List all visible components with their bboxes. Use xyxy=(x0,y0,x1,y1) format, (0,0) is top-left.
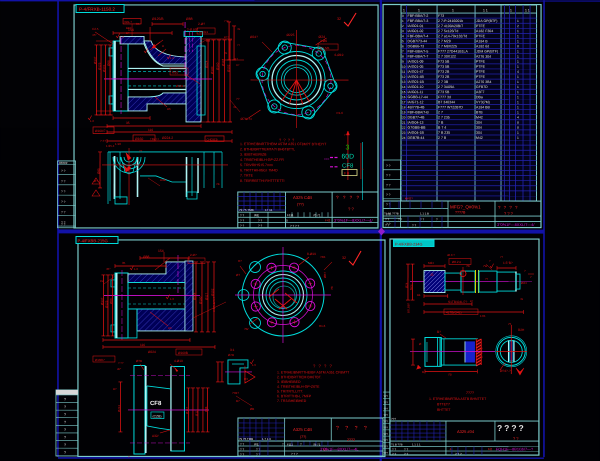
svg-text:1: 1 xyxy=(517,100,519,104)
svg-text:116: 116 xyxy=(148,128,153,132)
svg-text:???7B: ???7B xyxy=(455,211,466,215)
svg-text:?: ? xyxy=(64,413,66,417)
svg-text:Ø125: Ø125 xyxy=(104,300,108,308)
svg-text:?B: ?B xyxy=(330,286,334,290)
svg-text:Ø88: Ø88 xyxy=(186,17,193,21)
svg-text:FQH1F—8B1Gb/7—?: FQH1F—8B1Gb/7—? xyxy=(496,448,533,452)
svg-text:10: 10 xyxy=(402,65,406,69)
svg-text:8: 8 xyxy=(517,121,519,125)
svg-text:A276 3B4: A276 3B4 xyxy=(476,80,491,84)
svg-text:DGB77-4B: DGB77-4B xyxy=(408,116,426,120)
svg-text:?B: ?B xyxy=(237,27,240,31)
svg-text:4B/77B-4B: 4B/77B-4B xyxy=(408,105,426,109)
svg-text:417B(O4L): 417B(O4L) xyxy=(446,311,462,315)
svg-text:Ø160/7: Ø160/7 xyxy=(95,129,106,133)
svg-text:R1.6: R1.6 xyxy=(319,324,326,328)
svg-text:7?: 7? xyxy=(500,255,504,259)
svg-text:B 7 4: B 7 4 xyxy=(438,126,446,130)
svg-text:???: ??? xyxy=(391,417,396,421)
svg-text:? ? ?: ? ? ? xyxy=(455,452,462,456)
svg-text:BTTET7: BTTET7 xyxy=(437,402,450,406)
svg-text:PTFE: PTFE xyxy=(476,60,486,64)
svg-text:M42: M42 xyxy=(476,116,483,120)
svg-text:2: 2 xyxy=(402,24,404,28)
svg-text:4: 4 xyxy=(517,116,519,120)
svg-text:A182 6d: A182 6d xyxy=(476,44,489,48)
svg-text:1.6: 1.6 xyxy=(120,35,124,39)
svg-text:7. TRTE: 7. TRTE xyxy=(240,174,254,178)
svg-text:DBa: DBa xyxy=(476,95,483,99)
svg-text:? ?: ? ? xyxy=(61,190,66,194)
svg-text:? ?: ? ? xyxy=(240,219,245,223)
svg-text:PTFE: PTFE xyxy=(476,34,486,38)
svg-text:Ø190: Ø190 xyxy=(198,296,202,304)
svg-text:1:10: 1:10 xyxy=(115,142,121,146)
svg-text:G7GBB-BB: G7GBB-BB xyxy=(408,126,427,130)
svg-text:.1: .1 xyxy=(449,447,452,451)
svg-text:B??: B?? xyxy=(224,35,229,39)
svg-text:?: ? xyxy=(64,428,66,432)
svg-text:Ø160B: Ø160B xyxy=(178,351,188,355)
svg-text:12: 12 xyxy=(402,75,406,79)
svg-text:B7 340344: B7 340344 xyxy=(438,100,455,104)
svg-text:A32/: A32/ xyxy=(160,178,166,182)
svg-text:1.6: 1.6 xyxy=(170,297,174,301)
svg-text:13: 13 xyxy=(402,80,406,84)
svg-text:15: 15 xyxy=(402,90,406,94)
svg-text:3"0%1F—8XXL/7—4L: 3"0%1F—8XXL/7—4L xyxy=(320,447,359,452)
svg-text:Ø190: Ø190 xyxy=(210,66,214,74)
svg-text:6: 6 xyxy=(402,44,404,48)
svg-text:75: 75 xyxy=(508,322,512,326)
svg-text:1: 1 xyxy=(403,8,405,12)
svg-text:11: 11 xyxy=(402,70,405,74)
svg-text:1.6: 1.6 xyxy=(252,363,256,367)
svg-text:7 B 235: 7 B 235 xyxy=(438,131,450,135)
svg-text:1: 1 xyxy=(517,110,519,114)
svg-text:5. TRITRTLL/T?:: 5. TRITRTLL/T?: xyxy=(277,389,303,393)
svg-text:2 7 30X122: 2 7 30X122 xyxy=(438,55,456,59)
svg-text:1.5°B?: 1.5°B? xyxy=(503,261,513,265)
svg-text:Ø95: Ø95 xyxy=(97,168,101,174)
svg-text:JDA GP(BTF): JDA GP(BTF) xyxy=(476,19,497,23)
svg-text:7W: 7W xyxy=(483,264,488,268)
svg-text:1: 1 xyxy=(517,80,519,84)
svg-text:1 1: 1 1 xyxy=(483,8,488,12)
svg-text:5. TRIVRIHS:I5.7mm: 5. TRIVRIHS:I5.7mm xyxy=(240,163,273,167)
svg-text:? ?: ? ? xyxy=(240,442,245,446)
svg-text:PTFE: PTFE xyxy=(476,70,486,74)
svg-text:TBZ××: TBZ×× xyxy=(150,137,159,141)
svg-text:A182 F304: A182 F304 xyxy=(476,29,493,33)
svg-text:Ø224.2: Ø224.2 xyxy=(162,136,173,140)
svg-text:? ? ? ?: ? ? ? ? xyxy=(290,224,300,228)
svg-text:M10x1: M10x1 xyxy=(199,30,208,34)
svg-text:1: 1 xyxy=(517,55,519,59)
svg-text:A325 C4B: A325 C4B xyxy=(293,195,312,200)
svg-text:17B: 17B xyxy=(480,314,485,318)
svg-text:? ? ? ?: ? ? ? ? xyxy=(336,195,361,200)
svg-text:FBF-BBA/7-7: FBF-BBA/7-7 xyxy=(408,55,429,59)
svg-text:R6: R6 xyxy=(168,326,172,330)
svg-text:1.1 1.B: 1.1 1.B xyxy=(420,212,429,216)
svg-text:FBF-BBA/7-B: FBF-BBA/7-B xyxy=(408,110,430,114)
svg-text:1: 1 xyxy=(517,105,519,109)
svg-text:45°: 45° xyxy=(106,267,111,271)
svg-text:???: ??? xyxy=(383,394,388,398)
svg-text:304: 304 xyxy=(476,121,482,125)
svg-text:2 7: 2 7 xyxy=(438,110,443,114)
svg-text:IA/G71-12: IA/G71-12 xyxy=(408,100,424,104)
svg-text:Ø24: Ø24 xyxy=(521,281,527,285)
svg-text:45°: 45° xyxy=(92,33,97,37)
svg-text:2 7 M8X225: 2 7 M8X225 xyxy=(438,44,457,48)
svg-text:? ?: ? ? xyxy=(385,223,390,227)
svg-text:Ø160/7: Ø160/7 xyxy=(95,358,105,362)
svg-text:Ø160: Ø160 xyxy=(216,62,220,70)
svg-text:F777 27D441B1LA: F777 27D441B1LA xyxy=(438,49,468,53)
svg-text:A276 304: A276 304 xyxy=(476,55,491,59)
svg-text:? ?: ? ? xyxy=(348,207,354,212)
svg-text:IA/G01-4B: IA/G01-4B xyxy=(408,75,425,79)
svg-text:? ?: ? ? xyxy=(61,200,66,204)
svg-text:Ø?4B?B: Ø?4B?B xyxy=(479,347,483,358)
svg-text:Ø137: Ø137 xyxy=(185,407,189,414)
svg-text:IA/G01-01: IA/G01-01 xyxy=(408,24,424,28)
svg-text:35: 35 xyxy=(122,261,126,265)
svg-text:79 75 TMB: 79 75 TMB xyxy=(239,437,253,441)
svg-text:? ?: ? ? xyxy=(386,174,391,178)
svg-text:MFG?: MFG? xyxy=(405,197,413,201)
svg-text:Ø24: Ø24 xyxy=(404,282,408,288)
svg-text:A184 B: A184 B xyxy=(476,39,488,43)
svg-text:1: 1 xyxy=(517,34,519,38)
svg-text:4. TRIBTHEIBLH-GP-Z6TE: 4. TRIBTHEIBLH-GP-Z6TE xyxy=(277,385,320,389)
svg-text:F73 5B: F73 5B xyxy=(438,90,450,94)
svg-text:B?: B? xyxy=(236,399,240,403)
svg-text:???: ??? xyxy=(383,407,388,411)
svg-text:? ?: ? ? xyxy=(240,213,245,217)
svg-text:8. TEIRRBTTHI RHTTTETTI: 8. TEIRRBTTHI RHTTTETTI xyxy=(240,179,284,183)
svg-text:C2: C2 xyxy=(100,279,104,283)
svg-text:GFB7D: GFB7D xyxy=(476,85,488,89)
svg-text:PTFE: PTFE xyxy=(476,65,486,69)
svg-text:Ø?: Ø? xyxy=(236,273,240,277)
svg-text:F B: F B xyxy=(344,172,350,176)
svg-text:F73 5B: F73 5B xyxy=(438,60,450,64)
svg-text:? ?: ? ? xyxy=(240,452,245,456)
svg-text:??: ?? xyxy=(236,97,240,101)
svg-text:? ?: ? ? xyxy=(258,224,263,228)
svg-text:? ?: ? ? xyxy=(513,436,519,441)
svg-text:3:1: 3:1 xyxy=(230,348,235,352)
svg-text:8-Ø19: 8-Ø19 xyxy=(307,252,316,256)
svg-text:M24: M24 xyxy=(428,261,434,265)
svg-text:79 75 TMB: 79 75 TMB xyxy=(239,208,254,212)
svg-text:3"0%1F—8XXL/7—4/: 3"0%1F—8XXL/7—4/ xyxy=(497,222,535,227)
svg-text:R6: R6 xyxy=(167,107,171,111)
svg-text:3: 3 xyxy=(402,29,404,33)
svg-text:Ø224: Ø224 xyxy=(148,350,156,354)
svg-text:Ø?4: Ø?4 xyxy=(246,117,252,121)
svg-text:? ?: ? ? xyxy=(61,210,66,214)
svg-text:Ø88: Ø88 xyxy=(107,60,111,66)
svg-text:1: 1 xyxy=(402,19,404,23)
svg-text:? ?: ? ? xyxy=(386,164,391,168)
svg-text:?7B?: ?7B? xyxy=(232,391,239,395)
svg-text:???: ??? xyxy=(383,451,388,455)
svg-text:????: ???? xyxy=(497,423,526,433)
svg-text:1B: 1B xyxy=(417,293,421,297)
svg-text:M42: M42 xyxy=(476,136,483,140)
svg-text:CF8: CF8 xyxy=(342,164,354,170)
svg-text:9: 9 xyxy=(402,60,404,64)
svg-text:?: ? xyxy=(64,443,66,447)
svg-text:17: 17 xyxy=(402,100,406,104)
svg-text:Ø?B: Ø?B xyxy=(136,359,142,363)
svg-text:R?: R? xyxy=(236,63,240,67)
svg-text:Ø160: Ø160 xyxy=(135,137,143,141)
svg-text:Ø117: Ø117 xyxy=(221,59,225,66)
svg-text:? ? ?: ? ? ? xyxy=(504,211,514,216)
svg-text:1.7 1.3: 1.7 1.3 xyxy=(262,437,271,441)
svg-text:? ?: ? ? xyxy=(404,447,409,451)
svg-text:A3F7: A3F7 xyxy=(476,90,484,94)
svg-text:IA/G01-47: IA/G01-47 xyxy=(408,70,424,74)
svg-text:B?: B? xyxy=(437,330,441,334)
svg-text:? ?: ? ? xyxy=(240,447,245,451)
svg-text:Ø137: Ø137 xyxy=(93,56,97,64)
svg-text:?: ? xyxy=(64,420,66,424)
svg-text:2-Ø?: 2-Ø? xyxy=(198,22,205,26)
svg-text:304: 304 xyxy=(476,131,482,135)
svg-text:(7?): (7?) xyxy=(300,435,306,439)
svg-text:7B: 7B xyxy=(448,373,452,377)
svg-text:J5: J5 xyxy=(430,273,434,277)
svg-text:WE: WE xyxy=(254,213,259,217)
svg-text:154: 154 xyxy=(158,249,164,253)
svg-text:PTFE: PTFE xyxy=(476,75,486,79)
svg-text:P-4/FXBB-234G: P-4/FXBB-234G xyxy=(395,243,422,247)
svg-text:S1TB/O4L/7?: S1TB/O4L/7? xyxy=(448,300,468,304)
svg-text:2 7 4100A20B/7: 2 7 4100A20B/7 xyxy=(438,24,463,28)
svg-text:???: ??? xyxy=(383,413,388,417)
svg-text:DGB7/73-44: DGB7/73-44 xyxy=(408,39,428,43)
svg-text:Ø0.2 A: Ø0.2 A xyxy=(452,260,461,264)
svg-text:Ø137: Ø137 xyxy=(100,297,104,305)
svg-text:45°: 45° xyxy=(117,367,121,371)
svg-text:???: ??? xyxy=(383,400,388,404)
svg-text:?: ? xyxy=(64,398,66,402)
svg-text:16: 16 xyxy=(402,95,406,99)
svg-text:Ø117: Ø117 xyxy=(204,293,208,300)
svg-text:1: 1 xyxy=(517,29,519,33)
svg-text:PTFE: PTFE xyxy=(476,24,486,28)
svg-text:ØB?: ØB? xyxy=(323,272,327,278)
svg-text:35: 35 xyxy=(136,22,140,26)
svg-text:8: 8 xyxy=(517,44,519,48)
svg-text:154: 154 xyxy=(128,28,134,32)
svg-text:Ø125: Ø125 xyxy=(98,62,102,70)
svg-text:?1.B1 ?7?B: ?1.B1 ?7?B xyxy=(384,212,399,216)
svg-text:1: 1 xyxy=(452,8,454,12)
svg-text:B7B: B7B xyxy=(476,110,483,114)
svg-text:?.??: ?.?? xyxy=(118,361,124,365)
svg-text:R1.6: R1.6 xyxy=(337,111,344,115)
svg-text:? ? ? ?: ? ? ? ? xyxy=(313,364,333,369)
svg-text:1. ETRHEIBNRTTHEIBF A5TM A351: 1. ETRHEIBNRTTHEIBF A5TM A351 CF8M?T xyxy=(277,370,350,374)
svg-text:Ø125/B: Ø125/B xyxy=(152,17,164,21)
svg-text:? ?: ? ? xyxy=(392,447,397,451)
svg-text:Ø224: Ø224 xyxy=(117,405,121,412)
svg-text:Ø117: Ø117 xyxy=(194,409,198,416)
svg-text:?: ? xyxy=(64,451,66,455)
svg-text:1: 1 xyxy=(517,90,519,94)
svg-text:M10: M10 xyxy=(172,70,178,74)
svg-text:R3: R3 xyxy=(244,377,248,381)
svg-text:Ø88: Ø88 xyxy=(109,298,113,304)
svg-text:#####: ##### xyxy=(59,161,68,165)
svg-text:7?B: 7?B xyxy=(224,19,229,23)
svg-text:? ?: ? ? xyxy=(385,217,390,221)
svg-text:? ?: ? ? xyxy=(386,183,391,187)
svg-text:1.6: 1.6 xyxy=(170,56,174,60)
svg-text:F73: F73 xyxy=(438,14,444,18)
svg-text:14: 14 xyxy=(402,85,406,89)
svg-text:2-Ø?: 2-Ø? xyxy=(190,253,197,257)
svg-text:22: 22 xyxy=(402,126,406,130)
svg-text:Ø101.6: Ø101.6 xyxy=(176,84,186,88)
svg-text:1. ETRHEIBNRTTHEIM A5TM A351: 1. ETRHEIBNRTTHEIM A5TM A351 CF8M?T BTHE… xyxy=(240,142,327,146)
svg-text:???: ??? xyxy=(383,438,388,442)
svg-text:DGB66-73: DGB66-73 xyxy=(408,44,425,48)
svg-text:? ?: ? ? xyxy=(386,193,391,197)
svg-text:IA/G01-09: IA/G01-09 xyxy=(408,60,424,64)
svg-text:35: 35 xyxy=(126,121,130,125)
svg-text:40.3 ?: 40.3 ? xyxy=(447,253,455,257)
svg-text:2 7 3B: 2 7 3B xyxy=(438,80,449,84)
svg-text:? ?: ? ? xyxy=(420,217,425,221)
svg-text:1: 1 xyxy=(517,65,519,69)
svg-text:Ø88: Ø88 xyxy=(204,406,208,412)
svg-text:B: B xyxy=(422,370,424,374)
svg-text:FBF-BBA/7-4: FBF-BBA/7-4 xyxy=(408,34,429,38)
svg-text:24: 24 xyxy=(402,136,406,140)
svg-text:6. TRITTHIHIGb:I 7M4D: 6. TRITTHIHIGb:I 7M4D xyxy=(240,168,278,172)
svg-text:1: 1 xyxy=(517,95,519,99)
svg-text:IA/G01-10: IA/G01-10 xyxy=(408,85,424,89)
svg-text:A325 #04: A325 #04 xyxy=(457,429,475,434)
svg-text:? ?: ? ? xyxy=(61,179,66,183)
svg-text:?B/: ?B/ xyxy=(244,327,249,331)
svg-text:? ?: ? ? xyxy=(412,223,417,227)
svg-text:? ? ? ?: ? ? ? ? xyxy=(498,205,518,210)
svg-text:2. BTHEIBRTTIEM BH6TBT.: 2. BTHEIBRTTIEM BH6TBT. xyxy=(277,375,322,379)
svg-text:1: 1 xyxy=(517,19,519,23)
svg-text:2 7-P-2416001b: 2 7-P-2416001b xyxy=(438,19,463,23)
svg-text:BHTTET: BHTTET xyxy=(437,408,451,412)
svg-text:FBF-BBA/7-3: FBF-BBA/7-3 xyxy=(408,19,429,23)
svg-text:70 71: 70 71 xyxy=(313,213,321,217)
svg-text:0: 0 xyxy=(402,14,404,18)
svg-text:(??): (??) xyxy=(297,203,304,207)
svg-text:Ø102: Ø102 xyxy=(210,288,214,296)
svg-text:116: 116 xyxy=(140,343,145,347)
svg-text:?.??: ?.?? xyxy=(100,139,106,143)
svg-text:?1.B ?7B: ?1.B ?7B xyxy=(391,443,403,447)
svg-text:F73 2B: F73 2B xyxy=(438,70,450,74)
svg-text:2 7 a14-70x132/7d: 2 7 a14-70x132/7d xyxy=(438,34,467,38)
svg-text:P-4/FXBB-215G: P-4/FXBB-215G xyxy=(77,238,107,243)
svg-text:3"0%1F—8XXL/7—4/: 3"0%1F—8XXL/7—4/ xyxy=(334,218,373,223)
svg-text:IA/G01-11: IA/G01-11 xyxy=(408,90,424,94)
svg-text:BBL?: BBL? xyxy=(125,20,133,24)
svg-text:3. IEIBHEIBED: 3. IEIBHEIBED xyxy=(277,380,301,384)
svg-text:1: 1 xyxy=(517,136,519,140)
svg-text:6-Ø19: 6-Ø19 xyxy=(335,53,344,57)
svg-text:F73 2B: F73 2B xyxy=(438,75,450,79)
svg-text:===: === xyxy=(324,157,330,161)
svg-text:??: ?? xyxy=(139,149,143,153)
svg-text:4: 4 xyxy=(517,70,519,74)
svg-text:? ?: ? ? xyxy=(240,224,245,228)
svg-text:IA/G04-1B: IA/G04-1B xyxy=(408,131,425,135)
svg-text:1Q: 1Q xyxy=(488,447,493,451)
svg-text:Ø7.5/B: Ø7.5/B xyxy=(320,46,329,50)
svg-text:A32/: A32/ xyxy=(152,434,159,438)
svg-text:1.1 1.1: 1.1 1.1 xyxy=(412,443,421,447)
svg-text:? ?: ? ? xyxy=(404,452,409,456)
svg-text:1: 1 xyxy=(517,39,519,43)
svg-text:1: 1 xyxy=(517,131,519,135)
svg-text:MFG?_Q#0%1: MFG?_Q#0%1 xyxy=(450,205,481,210)
svg-text:1:25.4: 1:25.4 xyxy=(106,144,115,148)
svg-text:F73 5B: F73 5B xyxy=(438,65,450,69)
svg-text:17 11: 17 11 xyxy=(265,208,273,212)
svg-text:2??2: 2??2 xyxy=(347,438,355,442)
svg-text:7: 7 xyxy=(402,49,404,53)
svg-text:1: 1 xyxy=(517,75,519,79)
svg-text:Ø224: Ø224 xyxy=(192,292,196,300)
svg-text:P-4/FRXB-1150.2: P-4/FRXB-1150.2 xyxy=(79,7,115,12)
svg-text:V BTLB/7YT: V BTLB/7YT xyxy=(212,296,216,312)
svg-text:IA/G01-05: IA/G01-05 xyxy=(408,65,424,69)
svg-text:IA/G01-1B: IA/G01-1B xyxy=(408,80,425,84)
svg-text:ØB: ØB xyxy=(250,407,254,411)
svg-text:1: 1 xyxy=(418,8,420,12)
svg-text:IA/G04-13: IA/G04-13 xyxy=(408,121,424,125)
svg-text:F777 3d: F777 3d xyxy=(438,95,451,99)
svg-text:R?: R? xyxy=(113,387,117,391)
svg-text:?B: ?B xyxy=(224,51,227,55)
svg-text:? ?: ? ? xyxy=(61,222,66,226)
svg-text:R?: R? xyxy=(234,57,238,61)
svg-text:FBF-BBA/7-5: FBF-BBA/7-5 xyxy=(408,49,429,53)
svg-text:1.6: 1.6 xyxy=(90,119,94,123)
svg-text:1: 1 xyxy=(517,85,519,89)
svg-text:Ø102: Ø102 xyxy=(227,64,231,72)
svg-text:Ø7B: Ø7B xyxy=(228,353,234,357)
svg-text:?B: ?B xyxy=(520,297,523,301)
svg-text:C2.5: C2.5 xyxy=(92,27,99,31)
svg-text:32: 32 xyxy=(337,17,341,21)
svg-text:FBF-BBA/7-2: FBF-BBA/7-2 xyxy=(408,14,429,18)
svg-text:7?7?: 7?7? xyxy=(466,391,474,395)
svg-text:4. TRIBTHEIBLH-GP-ZZ.FR: 4. TRIBTHEIBLH-GP-ZZ.FR xyxy=(240,158,284,162)
svg-text:DGB7B-44: DGB7B-44 xyxy=(408,136,425,140)
svg-text:???: ??? xyxy=(383,419,388,423)
svg-text:F111: F111 xyxy=(287,213,294,217)
